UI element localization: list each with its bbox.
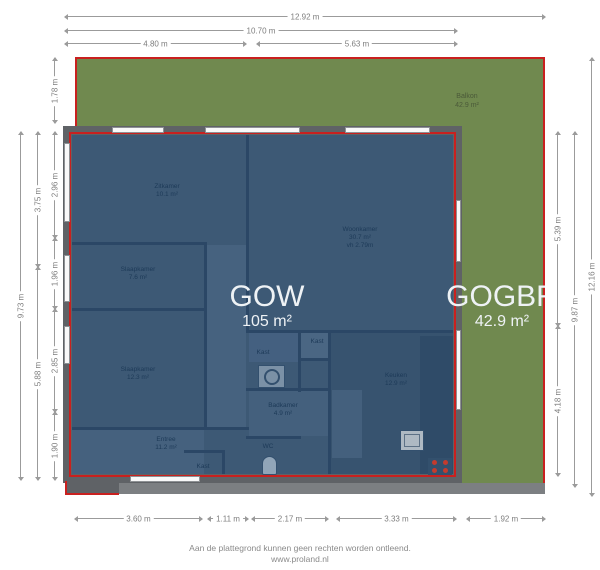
room-label-badkamer: Badkamer 4.9 m² — [268, 402, 298, 418]
room-name: Slaapkamer — [121, 266, 156, 274]
dim-left-upper: 3.75 m — [37, 132, 38, 267]
oven-door-icon — [404, 434, 420, 447]
room-label-zitkamer: Zitkamer 10.1 m² — [154, 183, 179, 199]
dim-bottom-4: 3.33 m — [337, 518, 456, 519]
gogbr-label-clip: GOGBR 42.9 m² — [441, 281, 545, 341]
dim-right-upper: 5.39 m — [557, 132, 558, 326]
room-label-slaapkamer-1: Slaapkamer 7.6 m² — [121, 266, 156, 282]
balkon-area-value: 42.9 m² — [430, 101, 504, 110]
toilet-icon — [262, 456, 277, 475]
window-top-2 — [205, 127, 300, 133]
room-name: Woonkamer — [343, 226, 378, 234]
dim-label: 2.96 m — [51, 170, 60, 200]
window-top-3 — [345, 127, 430, 133]
wall-keuken-left — [328, 332, 331, 474]
dim-label: 9.73 m — [17, 291, 26, 321]
window-top-1 — [112, 127, 164, 133]
room-name: Kast — [256, 349, 269, 357]
burner-icon — [443, 460, 448, 465]
gogbr-area-value: 42.9 m² — [441, 313, 545, 331]
dim-label: 9.87 m — [571, 294, 580, 324]
washer-icon — [258, 365, 285, 388]
dim-label: 12.16 m — [588, 260, 597, 295]
room-name: Entree — [155, 436, 177, 444]
room-label-kast-2: Kast — [256, 349, 269, 357]
wall-badkamer-top — [246, 388, 331, 391]
room-area: 30.7 m² — [343, 234, 378, 242]
dim-label: 5.39 m — [554, 214, 563, 244]
wall-wc-top — [246, 436, 301, 439]
room-name: WC — [263, 443, 274, 451]
wall-zitkamer-bottom — [72, 242, 207, 245]
dim-label: 5.88 m — [34, 358, 43, 388]
dim-left-total: 9.73 m — [20, 132, 21, 480]
window-right-2 — [456, 330, 461, 410]
dim-top-right-part: 5.63 m — [257, 43, 457, 44]
bottom-left-wall-step — [65, 481, 119, 495]
bottom-exterior-wall — [117, 483, 545, 494]
dim-left-room-1: 2.96 m — [54, 132, 55, 238]
room-label-wc: WC — [263, 443, 274, 451]
dim-label: 1.78 m — [51, 75, 60, 105]
dim-label: 1.92 m — [491, 515, 521, 524]
dim-left-room-3: 2.85 m — [54, 309, 55, 412]
room-label-woonkamer: Woonkamer 30.7 m² vh 2.79m — [343, 226, 378, 250]
floorplan-canvas: Balkon 42.9 m² Zitka — [0, 0, 600, 570]
oven-icon — [400, 430, 424, 451]
burner-icon — [432, 460, 437, 465]
balkon-name: Balkon — [430, 92, 504, 101]
dim-label: 4.18 m — [554, 386, 563, 416]
wall-kast-right — [298, 332, 301, 392]
disclaimer: Aan de plattegrond kunnen geen rechten w… — [0, 543, 600, 565]
window-left-2 — [64, 255, 70, 302]
room-area: 12.9 m² — [385, 380, 407, 388]
gow-title: GOW — [196, 281, 338, 313]
dim-left-lower: 5.88 m — [37, 267, 38, 480]
dim-bottom-3: 2.17 m — [252, 518, 328, 519]
dim-left-room-4: 1.90 m — [54, 412, 55, 480]
dim-label: 1.90 m — [51, 431, 60, 461]
washer-drum-icon — [264, 369, 280, 385]
dim-label: 12.92 m — [288, 13, 323, 22]
window-right-1 — [456, 200, 461, 262]
room-area: 4.9 m² — [268, 410, 298, 418]
dim-right-total: 12.16 m — [591, 58, 592, 496]
keuken-counter — [420, 336, 453, 474]
dim-label: 10.70 m — [244, 27, 279, 36]
website-text: www.proland.nl — [0, 554, 600, 565]
dim-top-building: 10.70 m — [65, 30, 457, 31]
dim-right-lower: 4.18 m — [557, 326, 558, 476]
balkon-label: Balkon 42.9 m² — [430, 92, 504, 110]
wall-hall-left — [204, 244, 207, 427]
room-name: Kast — [310, 338, 323, 346]
dim-label: 2.17 m — [275, 515, 305, 524]
wall-kast-entree-b — [222, 450, 225, 474]
dim-label: 5.63 m — [342, 40, 372, 49]
cooktop-icon — [428, 458, 452, 475]
kast-floor-2 — [249, 332, 298, 362]
room-area: 12.3 m² — [121, 374, 156, 382]
dim-left-room-2: 1.96 m — [54, 238, 55, 309]
keuken-island — [332, 390, 362, 458]
disclaimer-text: Aan de plattegrond kunnen geen rechten w… — [0, 543, 600, 554]
gogbr-title: GOGBR — [441, 281, 545, 313]
gogbr-label: GOGBR 42.9 m² — [441, 281, 545, 331]
dim-label: 2.85 m — [51, 345, 60, 375]
dim-left-balcony-strip: 1.78 m — [54, 58, 55, 123]
wall-slaapkamers — [72, 308, 207, 311]
room-height-note: vh 2.79m — [343, 242, 378, 250]
dim-bottom-1: 3.60 m — [75, 518, 202, 519]
dim-top-left-part: 4.80 m — [65, 43, 246, 44]
dim-label: 3.33 m — [381, 515, 411, 524]
gow-area-value: 105 m² — [196, 313, 338, 331]
wall-kast-entree-a — [184, 450, 225, 453]
dim-top-total: 12.92 m — [65, 16, 545, 17]
room-area: 10.1 m² — [154, 191, 179, 199]
burner-icon — [432, 468, 437, 473]
dim-label: 4.80 m — [140, 40, 170, 49]
room-name: Kast — [196, 463, 209, 471]
dim-bottom-2: 1.11 m — [208, 518, 248, 519]
room-name: Slaapkamer — [121, 366, 156, 374]
wall-kast-bottom — [298, 358, 331, 361]
gow-label: GOW 105 m² — [196, 281, 338, 331]
dim-bottom-5: 1.92 m — [467, 518, 545, 519]
room-label-entree: Entree 11.2 m² — [155, 436, 177, 452]
room-label-kast-3: Kast — [196, 463, 209, 471]
dim-right-building: 9.87 m — [574, 132, 575, 487]
burner-icon — [443, 468, 448, 473]
room-label-kast-1: Kast — [310, 338, 323, 346]
dim-label: 3.75 m — [34, 184, 43, 214]
hallway-floor — [207, 245, 246, 427]
dim-label: 1.96 m — [51, 258, 60, 288]
room-label-slaapkamer-2: Slaapkamer 12.3 m² — [121, 366, 156, 382]
room-name: Keuken — [385, 372, 407, 380]
room-area: 11.2 m² — [155, 444, 177, 452]
window-left-3 — [64, 326, 70, 364]
dim-label: 1.11 m — [213, 515, 243, 524]
window-left-1 — [64, 143, 70, 222]
room-label-keuken: Keuken 12.9 m² — [385, 372, 407, 388]
wall-entree-top — [72, 427, 249, 430]
dim-label: 3.60 m — [123, 515, 153, 524]
room-name: Zitkamer — [154, 183, 179, 191]
room-name: Badkamer — [268, 402, 298, 410]
door-bottom — [130, 476, 200, 482]
room-area: 7.6 m² — [121, 274, 156, 282]
